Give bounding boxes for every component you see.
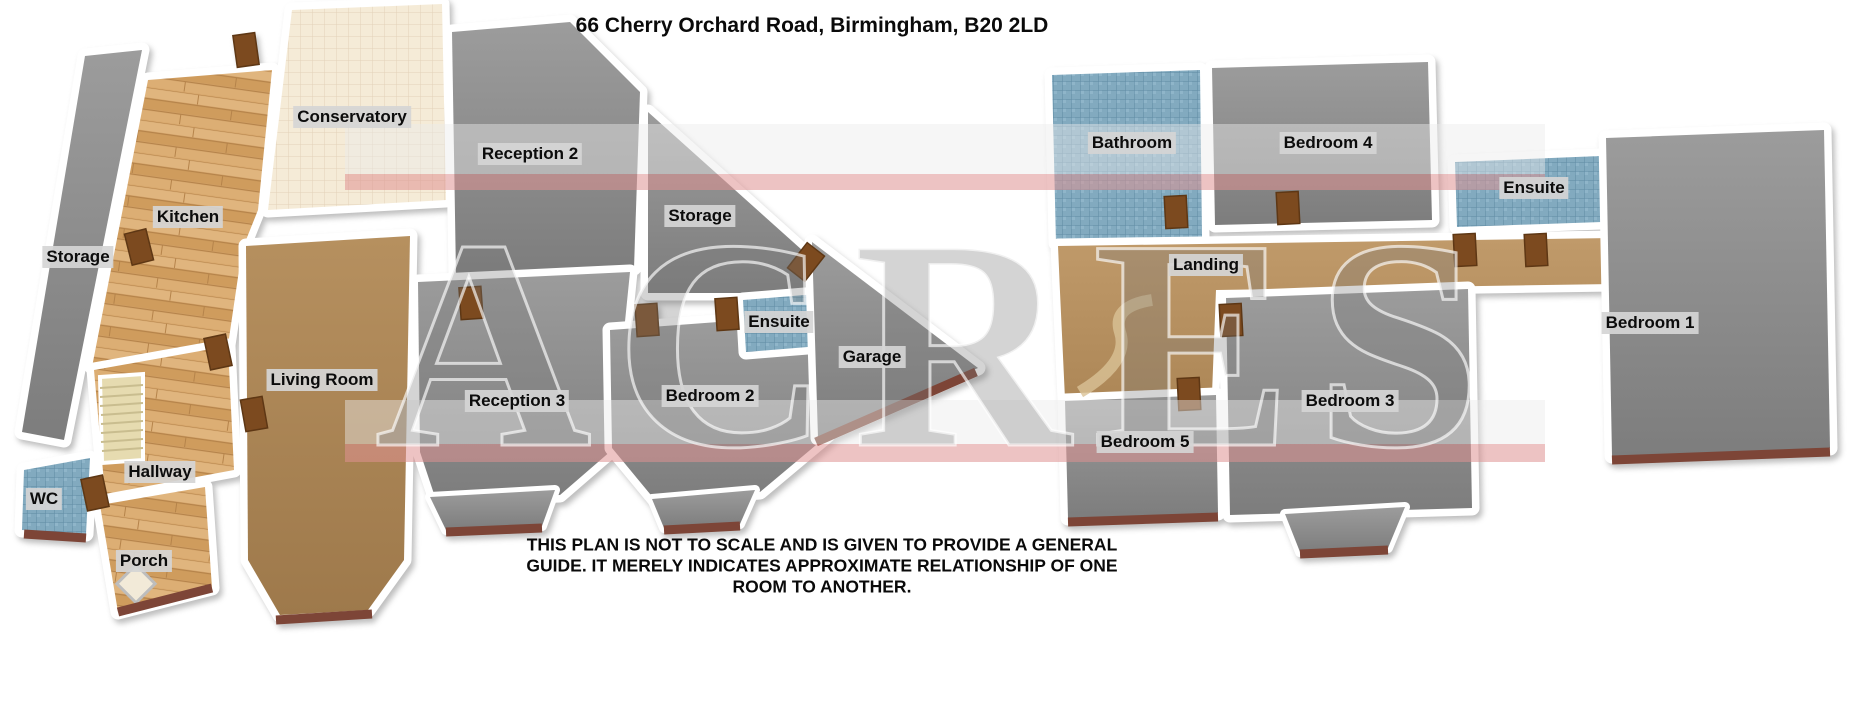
room-label-bedroom-4: Bedroom 4 [1280,132,1377,154]
room-label-hallway: Hallway [124,461,195,483]
room-label-bedroom-5: Bedroom 5 [1097,431,1194,453]
room-label-garage: Garage [839,346,906,368]
room-label-kitchen: Kitchen [153,206,223,228]
room-label-landing: Landing [1169,254,1243,276]
stairs-ground [100,374,143,463]
room-label-ensuite-ground: Ensuite [744,311,813,333]
room-label-storage-mid: Storage [664,205,735,227]
room-label-wc: WC [26,488,62,510]
address-title: 66 Cherry Orchard Road, Birmingham, B20 … [576,14,1049,38]
door [240,396,267,431]
room-bedroom-1 [1606,130,1830,456]
room-label-bedroom-1: Bedroom 1 [1602,312,1699,334]
door [1524,233,1548,266]
room-label-porch: Porch [116,550,172,572]
bay-window-bedroom-3 [1285,507,1405,552]
disclaimer-text: THIS PLAN IS NOT TO SCALE AND IS GIVEN T… [506,535,1138,598]
room-label-reception-3: Reception 3 [465,390,569,412]
watermark: ACRES [345,124,1545,510]
floorplan-canvas: ACRES 66 Cherry Orchard Road, Birmingham… [0,0,1849,704]
room-label-reception-2: Reception 2 [478,143,582,165]
door [233,33,259,68]
room-label-bathroom: Bathroom [1088,132,1176,154]
room-label-storage-left: Storage [42,246,113,268]
watermark-text: ACRES [375,178,1510,510]
room-label-conservatory: Conservatory [293,106,411,128]
room-label-bedroom-2: Bedroom 2 [662,385,759,407]
room-label-living-room: Living Room [267,369,378,391]
room-label-ensuite-first: Ensuite [1499,177,1568,199]
floorplan-graphic: ACRES [0,0,1849,704]
room-label-bedroom-3: Bedroom 3 [1302,390,1399,412]
